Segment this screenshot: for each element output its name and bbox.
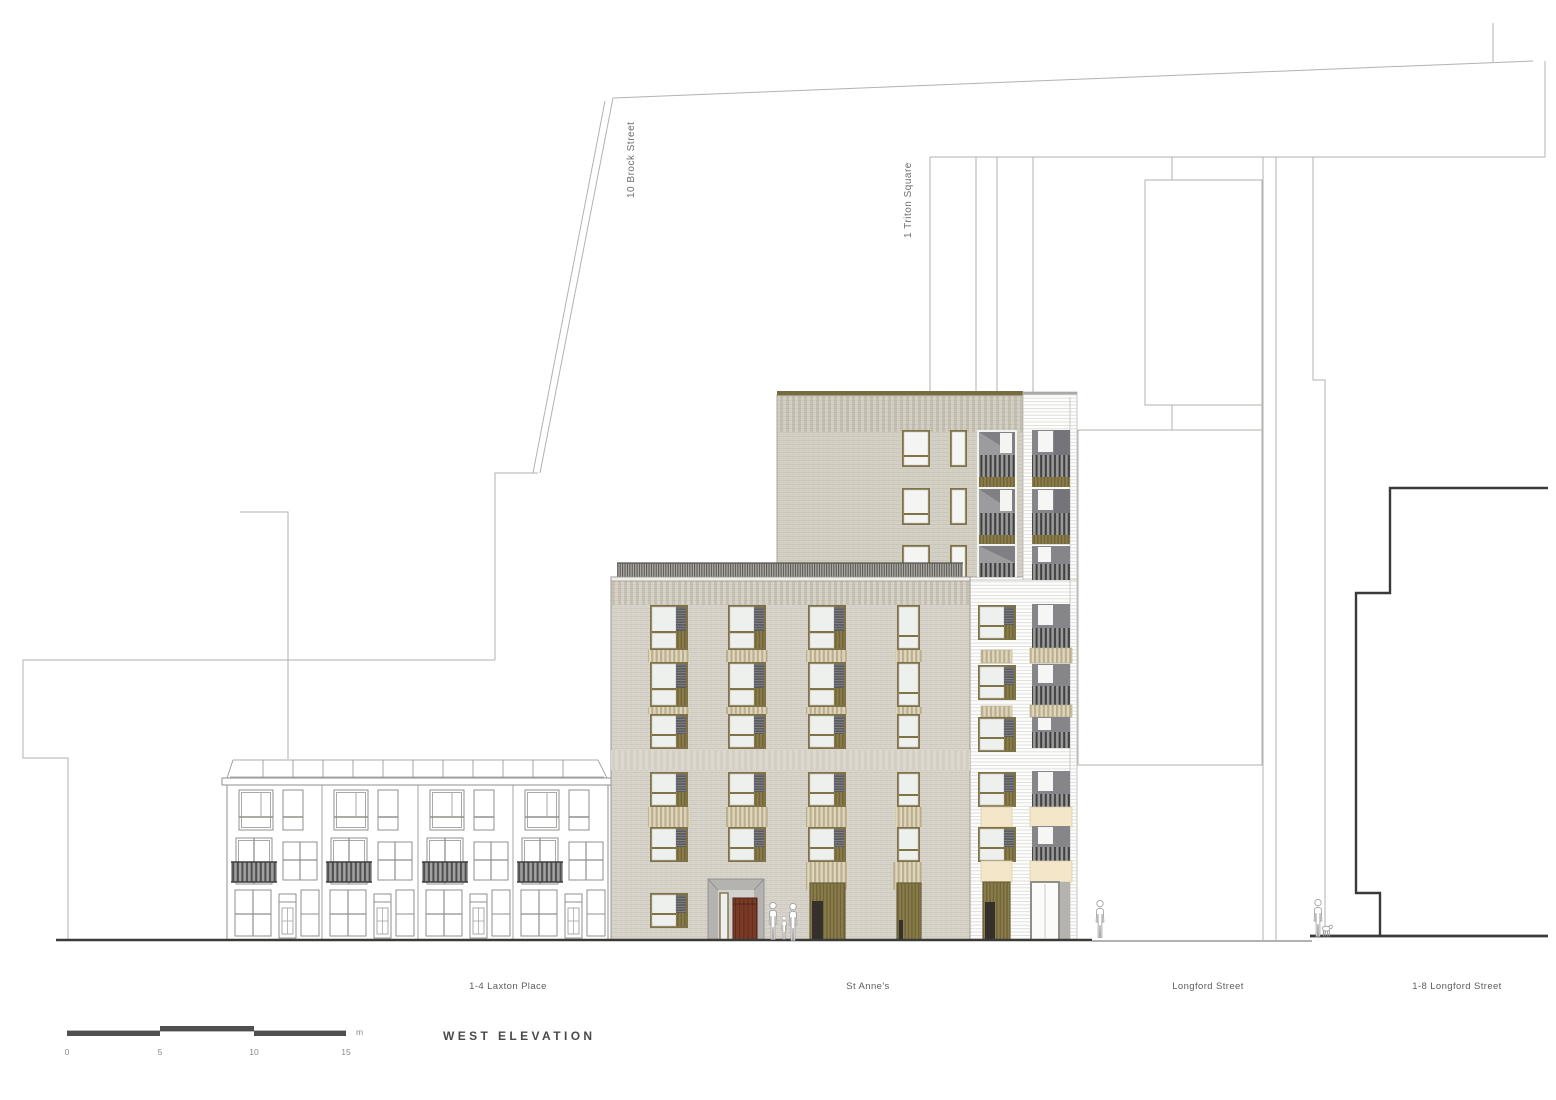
person-figure — [1096, 900, 1104, 937]
scale-tick-0: 0 — [65, 1047, 70, 1057]
upper-stripe-band — [777, 396, 1023, 432]
st-annes-lower-block — [611, 563, 970, 940]
scale-bar: 0 5 10 15 m — [65, 1026, 363, 1057]
entrance-sidelight — [720, 893, 728, 940]
upper-coping — [777, 391, 1023, 396]
st-annes-upper-block — [777, 391, 1023, 582]
white-strip-balconies — [1030, 430, 1072, 940]
scale-unit: m — [356, 1027, 363, 1037]
west-elevation-drawing: 10 Brock Street 1 Triton Square 1-4 Laxt… — [0, 0, 1556, 1100]
drawing-title: WEST ELEVATION — [443, 1029, 596, 1043]
scale-tick-15: 15 — [341, 1047, 351, 1057]
roof-terrace-railing — [617, 563, 963, 577]
terrace-roof-railing — [227, 760, 607, 778]
label-laxton-place: 1-4 Laxton Place — [469, 981, 547, 992]
main-entrance — [708, 879, 764, 940]
person-figure — [1314, 899, 1322, 936]
label-1-8-longford-street: 1-8 Longford Street — [1412, 981, 1501, 992]
label-1-triton-square: 1 Triton Square — [903, 162, 914, 238]
label-longford-street: Longford Street — [1172, 981, 1244, 992]
label-st-annes: St Anne's — [846, 981, 889, 992]
scale-tick-5: 5 — [158, 1047, 163, 1057]
white-strip-windows — [978, 605, 1016, 940]
building-1-4-laxton-place — [222, 760, 612, 940]
elevation-sheet: 10 Brock Street 1 Triton Square 1-4 Laxt… — [0, 0, 1556, 1100]
building-1-8-longford-street-outline — [1356, 488, 1548, 936]
label-10-brock-street: 10 Brock Street — [626, 122, 637, 198]
scale-tick-10: 10 — [249, 1047, 259, 1057]
upper-balcony-bay — [977, 430, 1017, 577]
